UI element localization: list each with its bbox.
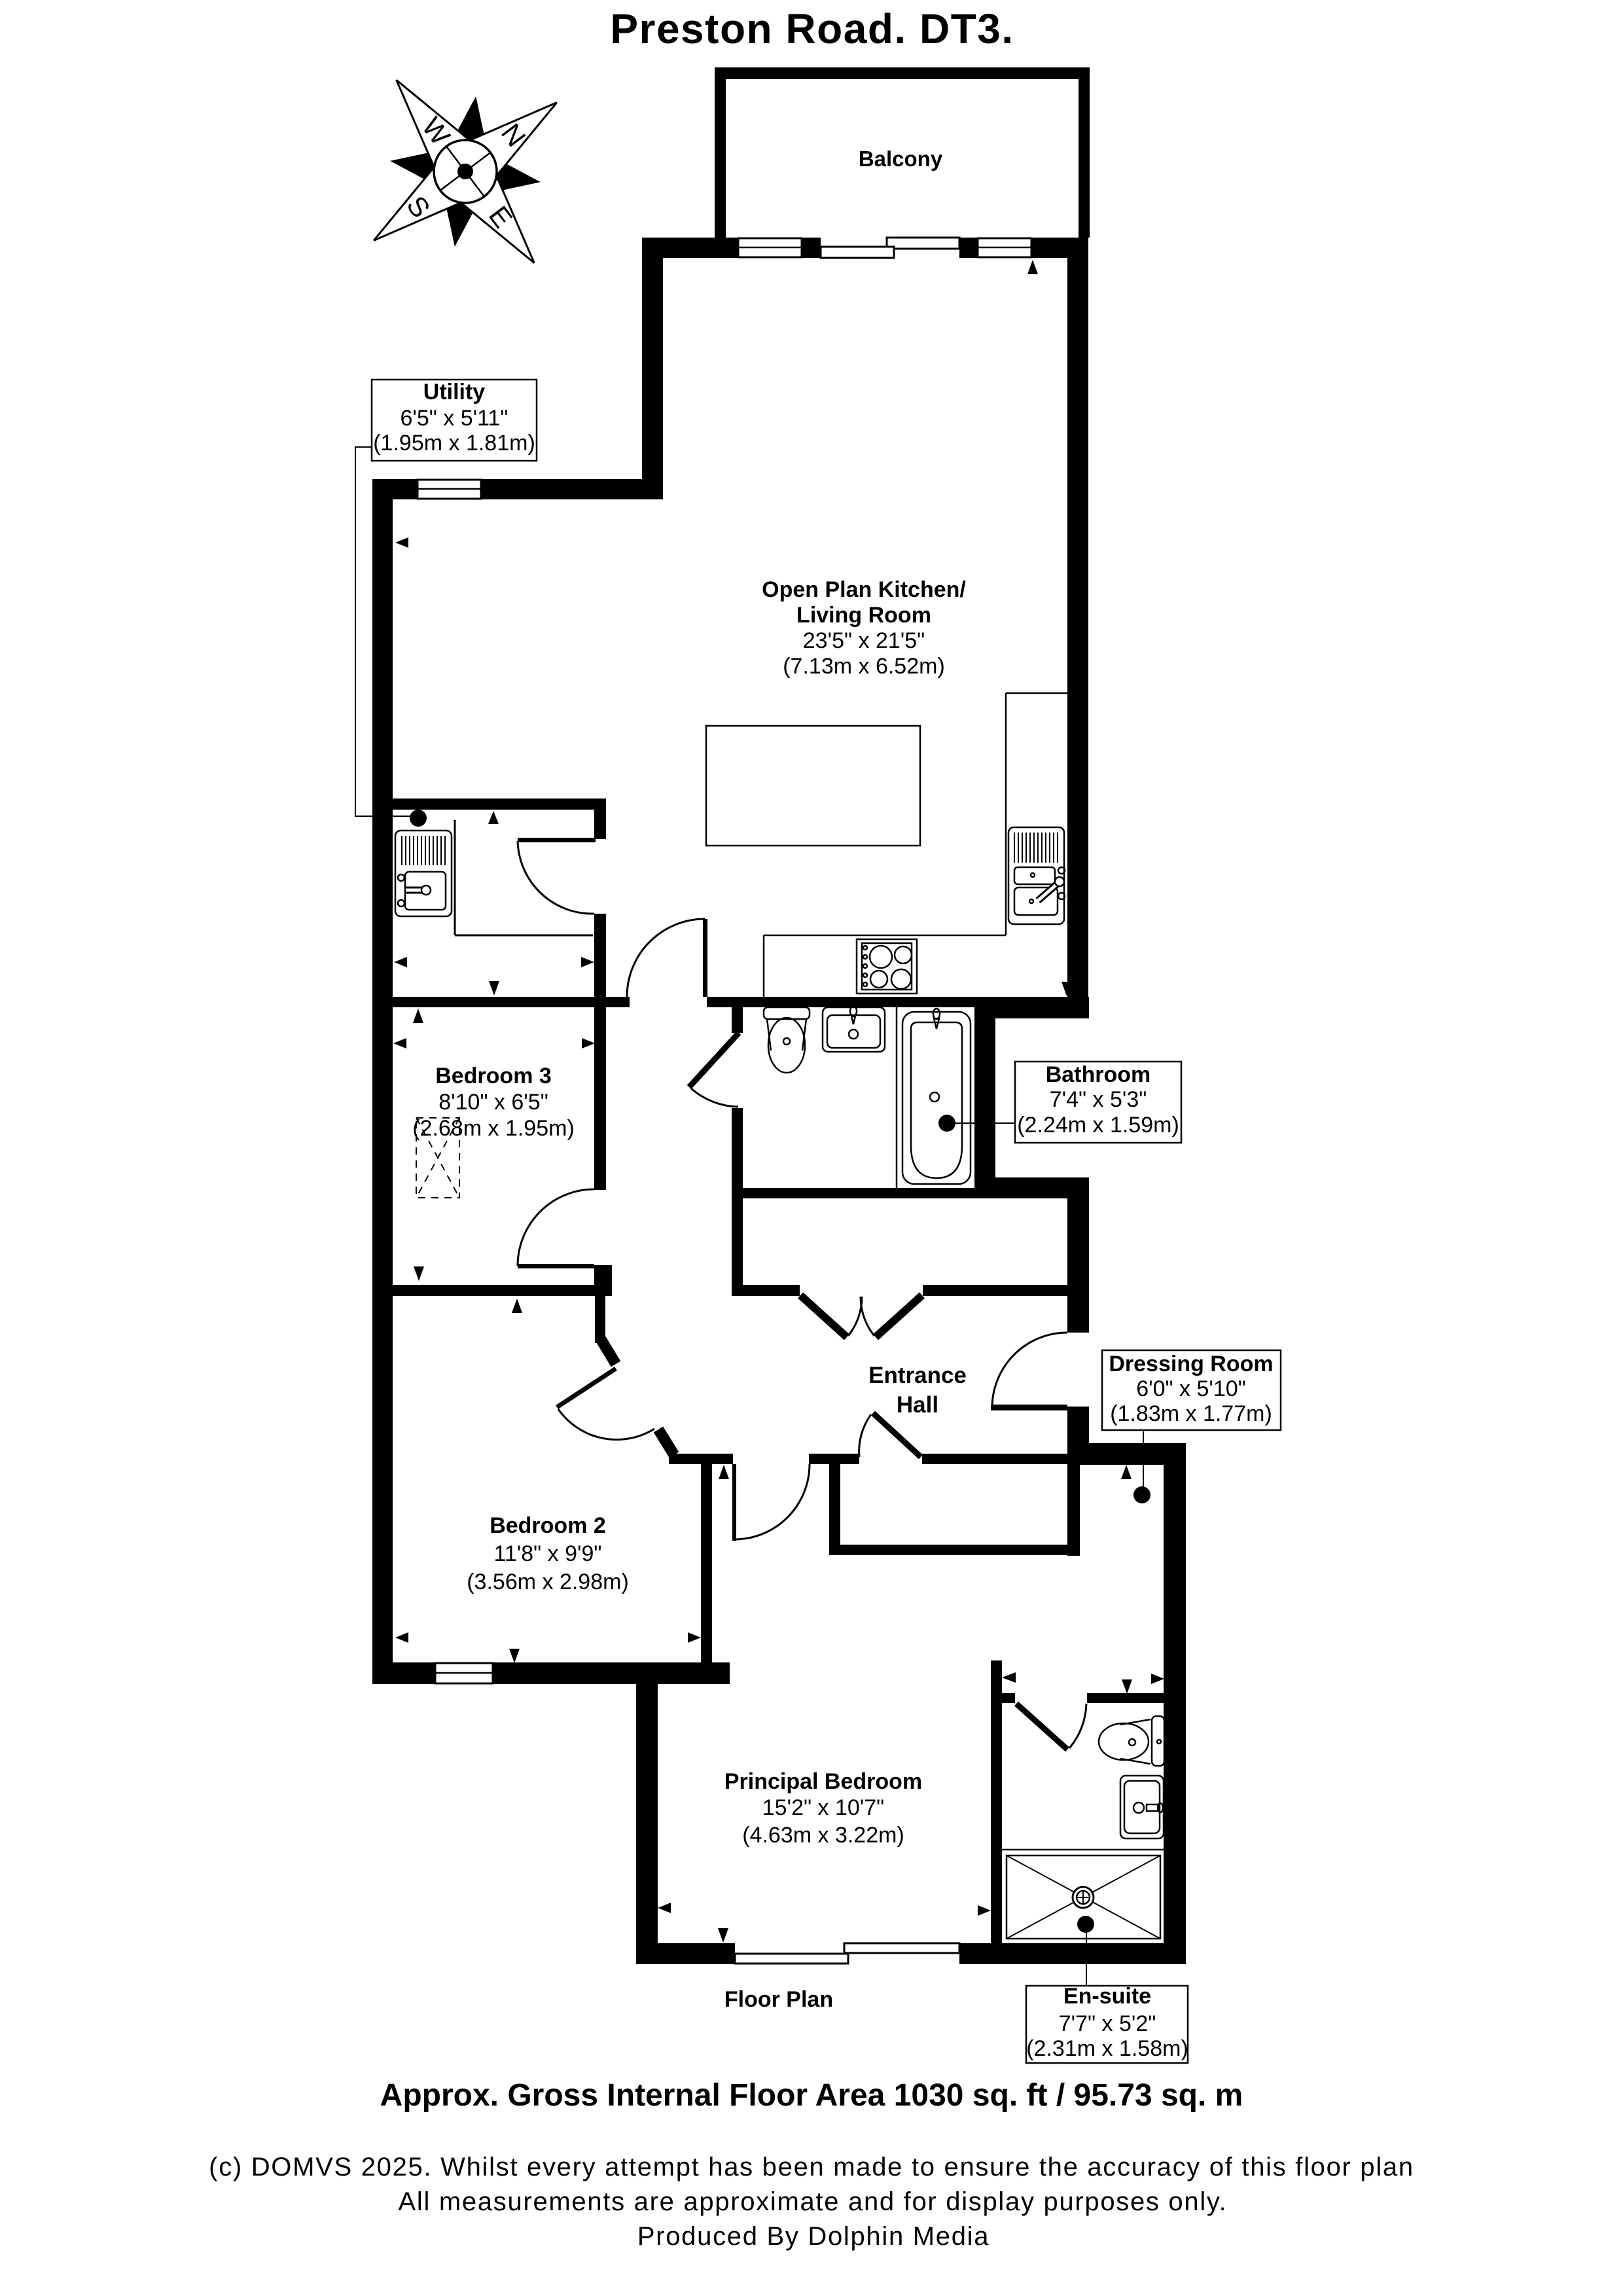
svg-text:(2.24m x 1.59m): (2.24m x 1.59m)	[1017, 1113, 1179, 1138]
svg-text:8'10" x 6'5": 8'10" x 6'5"	[438, 1090, 548, 1115]
svg-text:Produced By Dolphin Media: Produced By Dolphin Media	[637, 2222, 990, 2251]
svg-text:(1.95m x 1.81m): (1.95m x 1.81m)	[373, 431, 535, 456]
svg-text:Preston Road. DT3.: Preston Road. DT3.	[610, 5, 1014, 52]
svg-text:Bedroom 2: Bedroom 2	[490, 1513, 606, 1538]
svg-text:Principal Bedroom: Principal Bedroom	[724, 1769, 922, 1794]
svg-text:Living Room: Living Room	[796, 603, 931, 628]
svg-text:(2.68m x 1.95m): (2.68m x 1.95m)	[412, 1116, 575, 1141]
svg-text:23'5" x 21'5": 23'5" x 21'5"	[803, 628, 925, 653]
svg-text:Dressing Room: Dressing Room	[1109, 1352, 1273, 1376]
svg-text:Utility: Utility	[423, 380, 486, 404]
svg-text:Balcony: Balcony	[859, 147, 943, 171]
svg-text:7'7" x 5'2": 7'7" x 5'2"	[1059, 2011, 1156, 2036]
svg-text:7'4" x 5'3": 7'4" x 5'3"	[1050, 1087, 1147, 1112]
svg-text:(3.56m x 2.98m): (3.56m x 2.98m)	[467, 1570, 629, 1594]
svg-text:15'2" x 10'7": 15'2" x 10'7"	[762, 1795, 884, 1820]
svg-text:6'5" x 5'11": 6'5" x 5'11"	[400, 406, 508, 431]
svg-text:(7.13m x 6.52m): (7.13m x 6.52m)	[783, 654, 945, 679]
svg-text:Approx. Gross Internal Floor A: Approx. Gross Internal Floor Area 1030 s…	[380, 2078, 1243, 2113]
svg-text:(4.63m x 3.22m): (4.63m x 3.22m)	[742, 1823, 904, 1848]
svg-text:All measurements are approxima: All measurements are approximate and for…	[399, 2187, 1228, 2216]
svg-text:(2.31m x 1.58m): (2.31m x 1.58m)	[1026, 2036, 1188, 2061]
svg-text:(c) DOMVS 2025. Whilst every a: (c) DOMVS 2025. Whilst every attempt has…	[209, 2153, 1414, 2181]
svg-text:Bathroom: Bathroom	[1046, 1062, 1151, 1087]
svg-text:11'8" x 9'9": 11'8" x 9'9"	[493, 1541, 601, 1566]
svg-text:Bedroom 3: Bedroom 3	[435, 1064, 552, 1088]
svg-text:Entrance: Entrance	[868, 1363, 967, 1388]
svg-text:Floor Plan: Floor Plan	[724, 1987, 833, 2012]
svg-text:En-suite: En-suite	[1063, 1984, 1151, 2009]
svg-text:6'0" x 5'10": 6'0" x 5'10"	[1136, 1376, 1246, 1401]
svg-text:Hall: Hall	[897, 1392, 938, 1418]
svg-text:(1.83m x 1.77m): (1.83m x 1.77m)	[1110, 1401, 1272, 1426]
svg-text:Open Plan Kitchen/: Open Plan Kitchen/	[762, 577, 966, 602]
